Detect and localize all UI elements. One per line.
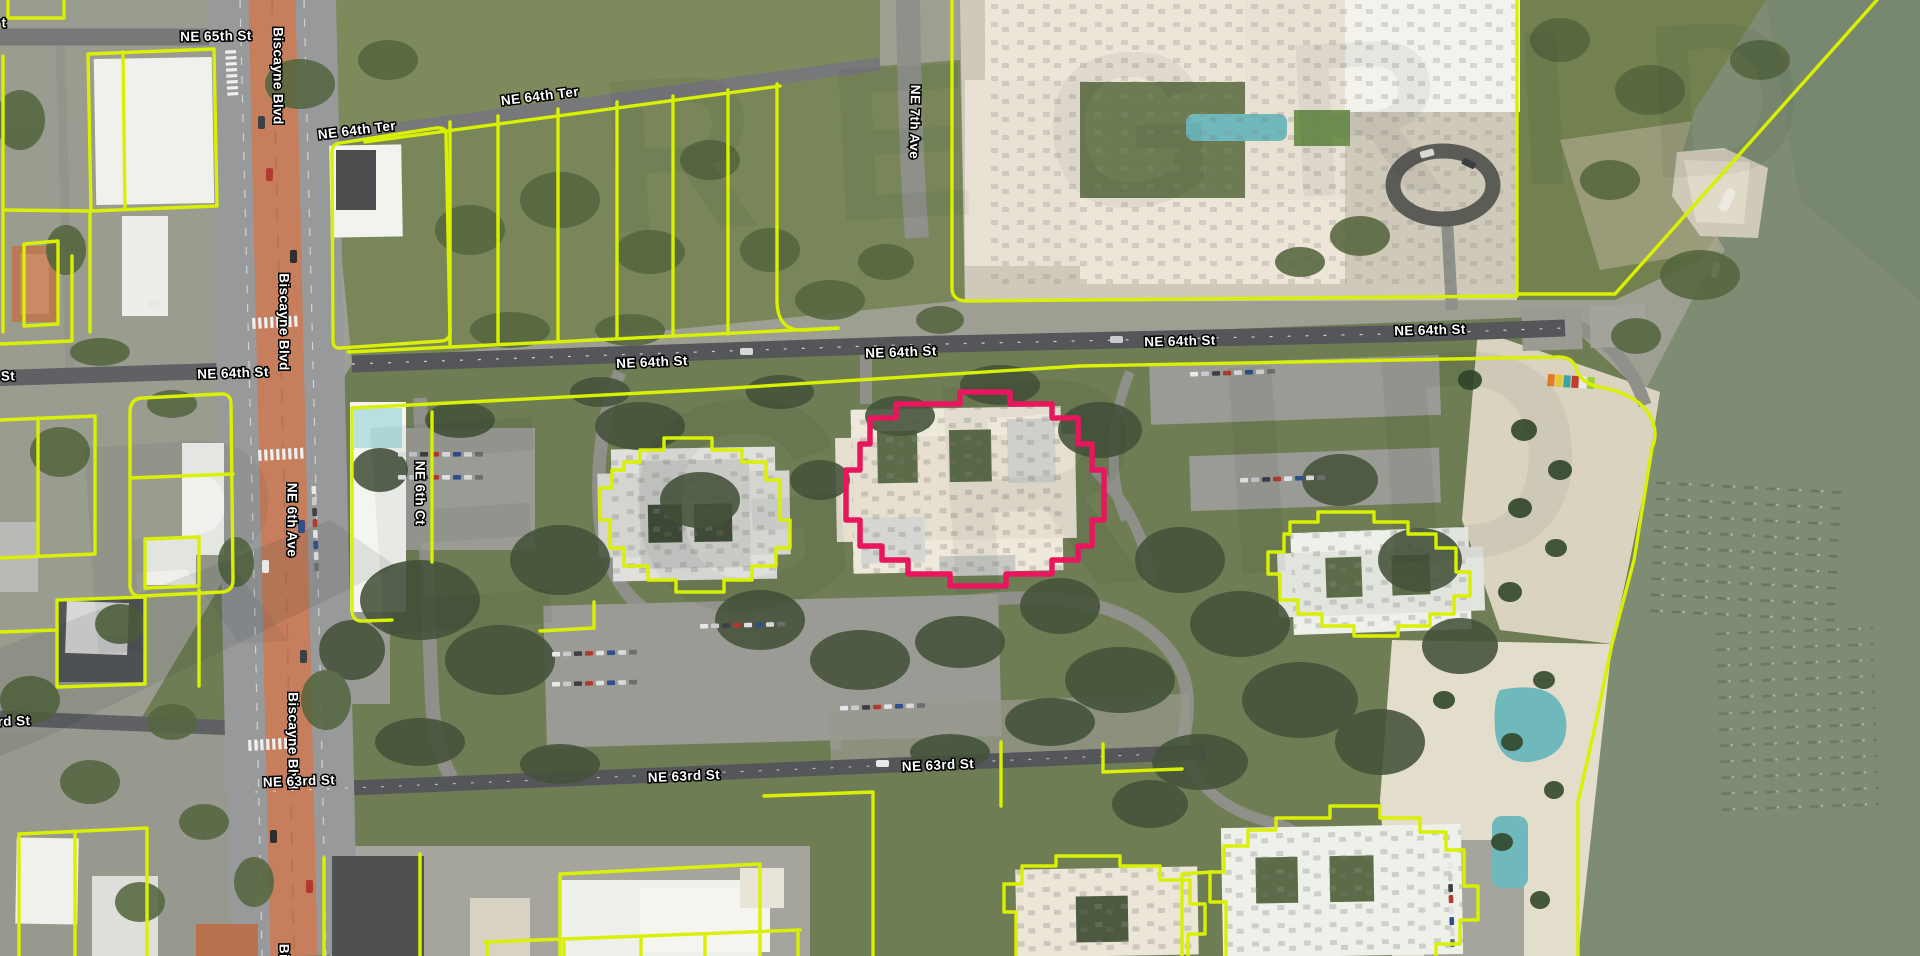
street-label: NE 64th St bbox=[616, 353, 688, 371]
street-label: Bi bbox=[276, 944, 291, 956]
street-label: NE 64th St bbox=[865, 343, 937, 360]
street-label: NE 63rd St bbox=[263, 772, 336, 790]
parcel-boundary[interactable] bbox=[0, 630, 57, 632]
street-label: NE 64th St bbox=[1144, 333, 1216, 350]
street-label: Biscayne Blvd bbox=[270, 27, 285, 125]
street-label: NE 64th St bbox=[197, 364, 269, 381]
street-label: St bbox=[1, 368, 16, 383]
street-label: Biscayne Blvd bbox=[276, 273, 291, 371]
street-label: NE 6th Ct bbox=[412, 461, 427, 525]
street-label: NE 64th St bbox=[1394, 322, 1466, 339]
street-label: rd St bbox=[0, 713, 31, 729]
street-label: NE 63rd St bbox=[648, 767, 721, 785]
street-label: t bbox=[2, 16, 7, 31]
map-canvas[interactable]: REGRID REGRID bbox=[0, 0, 1920, 956]
street-label: NE 63rd St bbox=[902, 756, 975, 774]
street-label: NE 6th Ave bbox=[284, 483, 299, 557]
street-label: NE 7th Ave bbox=[907, 85, 923, 160]
street-label: NE 65th St bbox=[180, 28, 252, 44]
